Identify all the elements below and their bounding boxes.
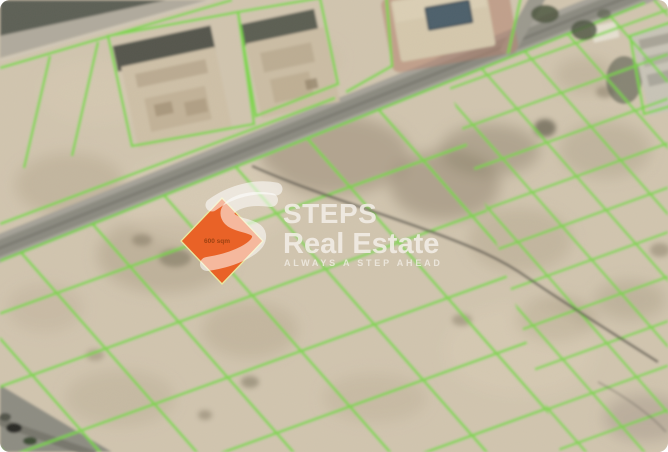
plot-area-label: 600 sqm <box>204 238 230 245</box>
brand-name-real-estate: Real Estate <box>283 228 439 260</box>
brand-name-steps: STEPS <box>283 198 377 229</box>
satellite-map-image: 600 sqm STEPS Real Estate ALWAYS A STEP … <box>0 0 668 452</box>
brand-tagline: ALWAYS A STEP AHEAD <box>284 258 443 268</box>
map-canvas: 600 sqm STEPS Real Estate ALWAYS A STEP … <box>0 0 668 452</box>
